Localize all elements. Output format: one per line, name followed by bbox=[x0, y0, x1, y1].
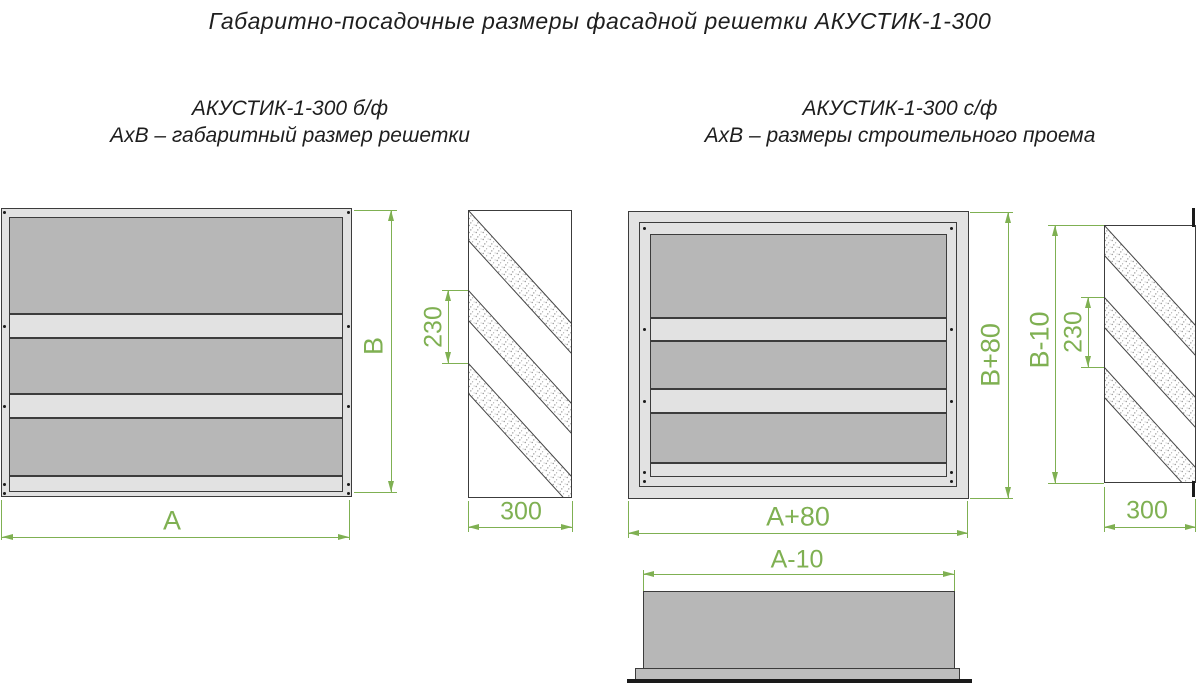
variant-right-name: АКУСТИК-1-300 с/ф bbox=[655, 95, 1145, 122]
extension-line bbox=[1081, 367, 1104, 368]
arrowhead-icon bbox=[1052, 225, 1058, 236]
extension-line bbox=[572, 501, 573, 532]
right-front-panel-dark-2 bbox=[650, 341, 947, 389]
variant-left-name: АКУСТИК-1-300 б/ф bbox=[40, 95, 540, 122]
drawing-canvas: Габаритно-посадочные размеры фасадной ре… bbox=[0, 0, 1200, 685]
screw-icon bbox=[643, 328, 646, 331]
variant-left-subtitle: АКУСТИК-1-300 б/ф АхВ – габаритный разме… bbox=[40, 95, 540, 149]
screw-icon bbox=[950, 400, 953, 403]
screw-icon bbox=[347, 405, 350, 408]
right-front-lamella-strip-2 bbox=[650, 389, 947, 413]
arrowhead-icon bbox=[561, 524, 572, 530]
dim-label-300-left: 300 bbox=[500, 498, 542, 527]
screw-icon bbox=[643, 480, 646, 483]
dimension-line-width-a bbox=[2, 537, 349, 538]
dim-label-b: В bbox=[359, 337, 390, 355]
screw-icon bbox=[347, 492, 350, 495]
dimension-line-height-b bbox=[391, 210, 392, 492]
left-front-lamella-strip-1 bbox=[9, 314, 343, 338]
left-front-lamella-strip-3 bbox=[9, 476, 343, 492]
flange-tick bbox=[1192, 208, 1195, 227]
flange-tick bbox=[1192, 481, 1195, 497]
dim-label-b80: В+80 bbox=[976, 323, 1007, 387]
screw-icon bbox=[3, 405, 6, 408]
dimension-line-depth-300 bbox=[1104, 527, 1196, 528]
arrowhead-icon bbox=[445, 352, 451, 363]
right-front-panel-dark-1 bbox=[650, 234, 947, 318]
dim-label-b10: В-10 bbox=[1025, 311, 1056, 368]
left-front-panel-dark-2 bbox=[9, 338, 343, 394]
extension-line bbox=[442, 363, 468, 364]
dim-label-230-left: 230 bbox=[420, 306, 449, 348]
bottom-view-flange-plate bbox=[627, 679, 972, 683]
screw-icon bbox=[643, 227, 646, 230]
screw-icon bbox=[3, 483, 6, 486]
dim-label-230-right: 230 bbox=[1060, 311, 1089, 353]
screw-icon bbox=[3, 325, 6, 328]
variant-left-description: АхВ – габаритный размер решетки bbox=[40, 122, 540, 149]
left-front-lamella-strip-2 bbox=[9, 394, 343, 418]
arrowhead-icon bbox=[1005, 487, 1011, 498]
dim-label-300-right: 300 bbox=[1126, 497, 1168, 526]
dim-label-a10: А-10 bbox=[771, 546, 824, 575]
variant-right-subtitle: АКУСТИК-1-300 с/ф АхВ – размеры строител… bbox=[655, 95, 1145, 149]
arrowhead-icon bbox=[1104, 524, 1115, 530]
arrowhead-icon bbox=[468, 524, 479, 530]
arrowhead-icon bbox=[445, 290, 451, 301]
extension-line bbox=[349, 500, 350, 540]
arrowhead-icon bbox=[1085, 356, 1091, 367]
dimension-line-height-b80 bbox=[1008, 212, 1009, 498]
right-front-panel-dark-3 bbox=[650, 413, 947, 463]
screw-icon bbox=[3, 211, 6, 214]
extension-line bbox=[970, 498, 1013, 499]
arrowhead-icon bbox=[338, 534, 349, 540]
right-front-lamella-strip-3 bbox=[650, 463, 947, 477]
arrowhead-icon bbox=[2, 534, 13, 540]
extension-line bbox=[1048, 483, 1104, 484]
left-front-panel-dark-3 bbox=[9, 418, 343, 476]
screw-icon bbox=[347, 211, 350, 214]
screw-icon bbox=[347, 325, 350, 328]
screw-icon bbox=[3, 492, 6, 495]
arrowhead-icon bbox=[1005, 212, 1011, 223]
dim-label-a: А bbox=[163, 506, 181, 537]
screw-icon bbox=[643, 471, 646, 474]
dim-label-a80: А+80 bbox=[766, 502, 830, 533]
dimension-line-depth-300 bbox=[468, 527, 572, 528]
left-side-view bbox=[468, 210, 572, 498]
screw-icon bbox=[347, 483, 350, 486]
screw-icon bbox=[950, 471, 953, 474]
arrowhead-icon bbox=[388, 481, 394, 492]
bottom-view-body bbox=[643, 591, 955, 669]
arrowhead-icon bbox=[388, 210, 394, 221]
screw-icon bbox=[950, 328, 953, 331]
variant-right-description: АхВ – размеры строительного проема bbox=[655, 122, 1145, 149]
dimension-line-width-a80 bbox=[628, 533, 968, 534]
extension-line bbox=[354, 492, 397, 493]
arrowhead-icon bbox=[1185, 524, 1196, 530]
screw-icon bbox=[950, 480, 953, 483]
arrowhead-icon bbox=[957, 530, 968, 536]
right-side-view bbox=[1104, 225, 1196, 483]
arrowhead-icon bbox=[943, 571, 954, 577]
screw-icon bbox=[643, 400, 646, 403]
arrowhead-icon bbox=[643, 571, 654, 577]
screw-icon bbox=[950, 227, 953, 230]
arrowhead-icon bbox=[1052, 472, 1058, 483]
left-front-panel-dark-1 bbox=[9, 217, 343, 314]
page-title: Габаритно-посадочные размеры фасадной ре… bbox=[0, 8, 1200, 35]
arrowhead-icon bbox=[628, 530, 639, 536]
arrowhead-icon bbox=[1085, 297, 1091, 308]
right-front-lamella-strip-1 bbox=[650, 318, 947, 341]
extension-line bbox=[954, 570, 955, 591]
